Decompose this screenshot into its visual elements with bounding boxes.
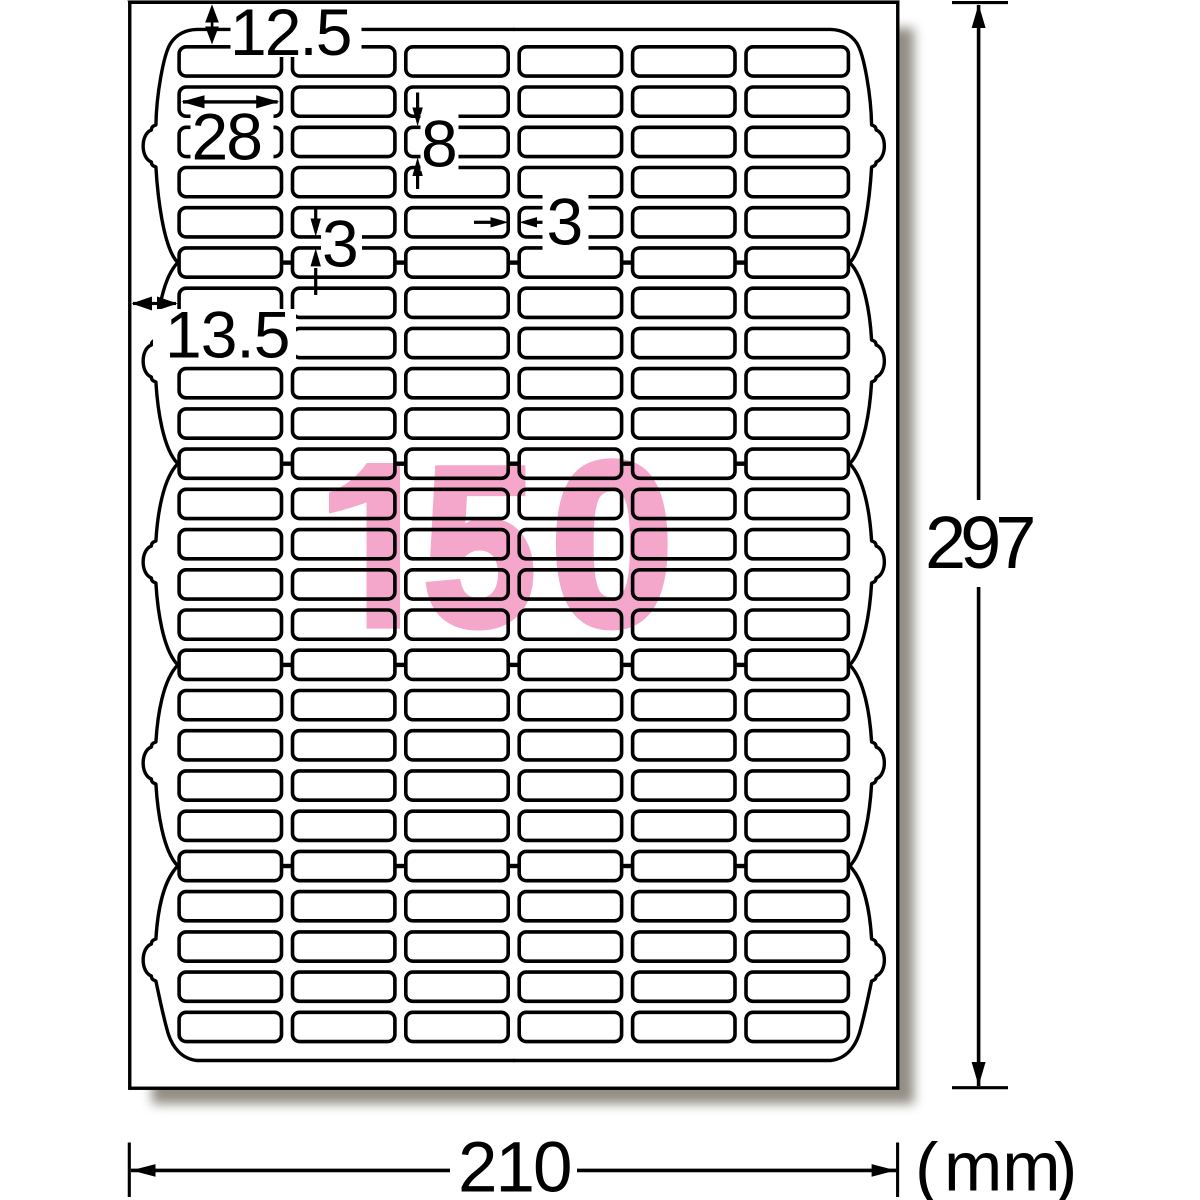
svg-text:3: 3 <box>322 207 357 281</box>
svg-text:): ) <box>1054 1129 1077 1200</box>
svg-text:0: 0 <box>551 414 673 673</box>
svg-text:297: 297 <box>925 501 1033 584</box>
svg-text:13.5: 13.5 <box>165 298 289 372</box>
svg-text:mm: mm <box>944 1128 1061 1200</box>
svg-text:12.5: 12.5 <box>230 0 350 69</box>
svg-text:3: 3 <box>547 185 582 259</box>
svg-text:(: ( <box>915 1129 938 1200</box>
svg-text:210: 210 <box>458 1129 570 1200</box>
svg-text:28: 28 <box>192 100 261 174</box>
svg-text:8: 8 <box>421 107 456 181</box>
